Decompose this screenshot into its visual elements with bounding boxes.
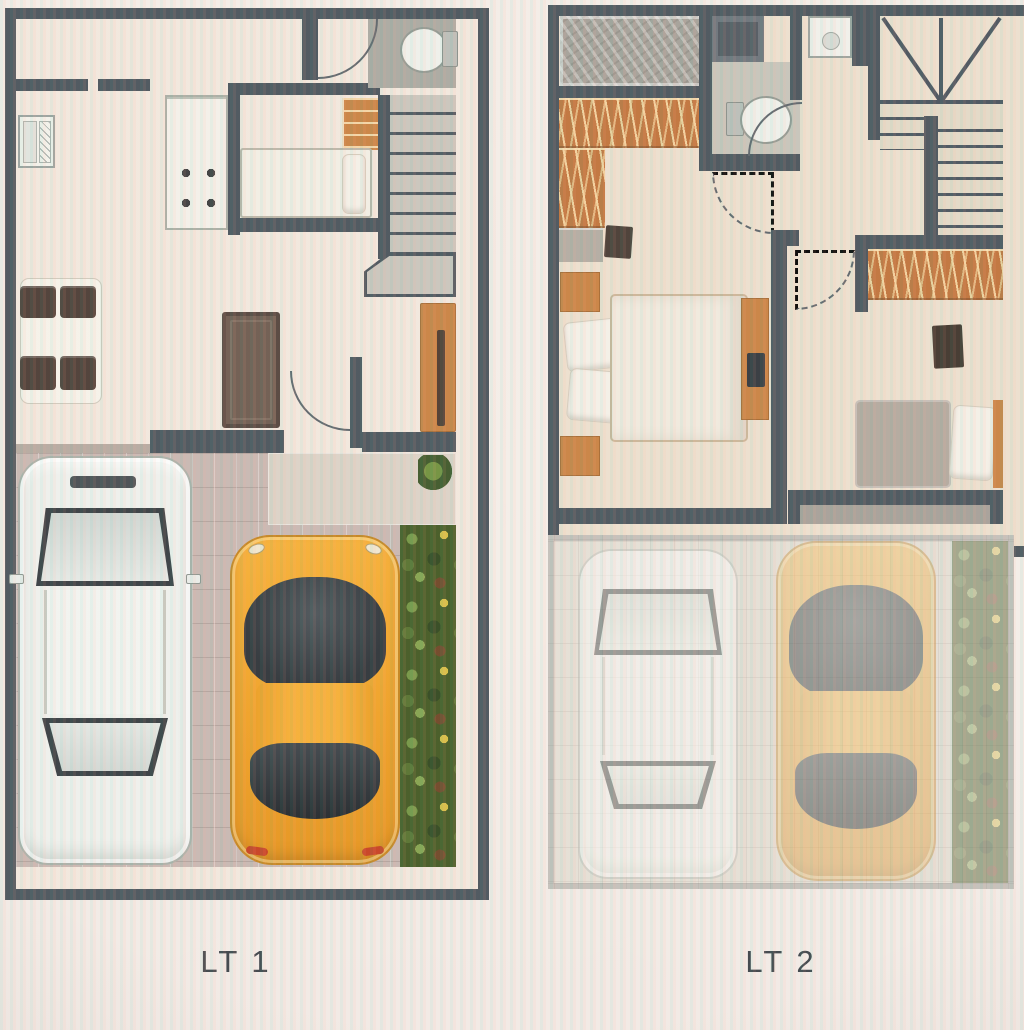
faded-yellow-car <box>776 541 936 881</box>
bed2-mattress <box>855 400 951 488</box>
white-car-windshield <box>36 508 174 586</box>
double-bed <box>610 294 748 442</box>
faded-garden-strip <box>952 541 1008 883</box>
nightstand <box>560 272 600 312</box>
wall-tv <box>932 324 964 369</box>
white-car-rear-window <box>42 718 168 776</box>
textured-balcony <box>560 16 710 86</box>
tv-icon <box>747 353 765 387</box>
lt2-faded-driveway <box>548 535 1014 889</box>
stair-landing-floor <box>367 256 453 294</box>
entry-door-arc <box>290 371 350 431</box>
shower <box>712 16 764 62</box>
floorplan-lt1 <box>5 8 489 900</box>
stove-counter <box>165 95 228 230</box>
garden-strip <box>400 525 456 867</box>
faded-white-car-rear-glass <box>605 766 711 804</box>
wall-segment <box>868 16 880 140</box>
yellow-car-windshield-canopy <box>244 577 386 689</box>
floorplan-lt2 <box>548 5 1014 889</box>
bed2-pillow <box>948 405 997 482</box>
closet-hangers-side <box>559 148 605 228</box>
dining-chair <box>20 356 56 390</box>
sink-basin <box>23 121 37 163</box>
tv-small <box>604 225 633 259</box>
shrub <box>418 455 456 491</box>
kitchen-sink <box>18 115 55 168</box>
faded-white-car-windshield-glass <box>599 594 717 650</box>
lt2-house <box>548 5 1024 557</box>
bed2-frame <box>993 400 1003 488</box>
open-shelf <box>342 98 378 150</box>
wall-segment <box>790 16 802 100</box>
terrace-ledge <box>800 505 990 524</box>
sofa-cushion <box>230 320 272 420</box>
basin-bowl <box>822 32 840 50</box>
wash-basin <box>808 16 852 58</box>
wall-segment <box>228 83 240 235</box>
hall-door-arc <box>712 172 774 234</box>
wall-segment <box>302 19 318 80</box>
wall-segment <box>699 154 800 171</box>
wall-segment <box>771 230 787 524</box>
white-car-windshield-glass <box>41 513 169 581</box>
white-car-mirror-left <box>9 574 24 584</box>
railing-stub <box>788 490 800 524</box>
white-car-rear-glass <box>47 723 163 771</box>
wall-segment <box>378 95 390 259</box>
faded-white-car-rear-window <box>600 761 716 809</box>
staircase-lower-treads <box>938 116 1003 245</box>
stair-winder-icon <box>880 16 1003 104</box>
wall-segment <box>855 235 1003 249</box>
cabinet-slot <box>437 330 445 426</box>
wall-segment <box>855 235 868 312</box>
bedroom2-door-arc <box>795 250 855 310</box>
toilet-icon <box>400 27 448 73</box>
yellow-car-roof <box>256 683 374 749</box>
lt1-interior <box>16 19 478 889</box>
driveway-pavers <box>16 453 456 867</box>
wall-segment <box>228 83 380 95</box>
white-car <box>18 456 192 865</box>
wall-segment <box>788 490 1003 505</box>
faded-yellow-car-roof <box>800 691 912 757</box>
yellow-car <box>230 535 400 865</box>
white-car-roof <box>44 590 166 714</box>
tv-console <box>741 298 769 420</box>
wall-segment <box>16 79 88 91</box>
sofa <box>222 312 280 428</box>
wall-segment <box>228 218 392 232</box>
wall-segment <box>699 16 712 160</box>
faded-yellow-car-canopy <box>789 585 923 697</box>
sink-drainboard <box>39 121 51 163</box>
staircase-treads <box>390 95 456 255</box>
dining-chair <box>20 286 56 318</box>
step-edge <box>16 444 150 453</box>
entry-step-block <box>150 430 284 455</box>
closet2-hangers <box>868 249 1003 300</box>
stair-landing <box>364 253 456 297</box>
railing-stub <box>990 490 1003 524</box>
yellow-car-rear-glass <box>250 743 380 819</box>
white-car-mirror-right <box>186 574 201 584</box>
screen-photo: { "plans": [ { "label": "LT 1", "floor_e… <box>0 0 1024 1030</box>
wall-segment <box>559 86 711 98</box>
dining-chair <box>60 286 96 318</box>
wall-segment <box>362 432 456 452</box>
white-car-sunroof <box>70 476 136 488</box>
faded-white-car-roof <box>602 657 714 755</box>
faded-white-car-windshield <box>594 589 722 655</box>
wood-cabinet <box>420 303 456 432</box>
faded-layer <box>554 541 1008 883</box>
stair-spine-wall <box>924 116 938 245</box>
plan-label-lt2: LT 2 <box>548 944 1014 980</box>
wall-segment <box>350 357 362 448</box>
nightstand <box>560 436 600 476</box>
lt2-interior <box>559 16 1024 546</box>
single-bed <box>240 148 372 218</box>
faded-white-car <box>578 549 738 879</box>
dining-chair <box>60 356 96 390</box>
wall-segment <box>98 79 150 91</box>
closet-shelf <box>559 228 603 262</box>
wall-segment <box>559 508 787 524</box>
plan-label-lt1: LT 1 <box>5 944 467 980</box>
closet-hangers-top <box>559 98 699 148</box>
toilet-tank <box>442 31 458 67</box>
bed-pillow <box>342 154 366 214</box>
faded-yellow-car-rear-glass <box>795 753 917 829</box>
